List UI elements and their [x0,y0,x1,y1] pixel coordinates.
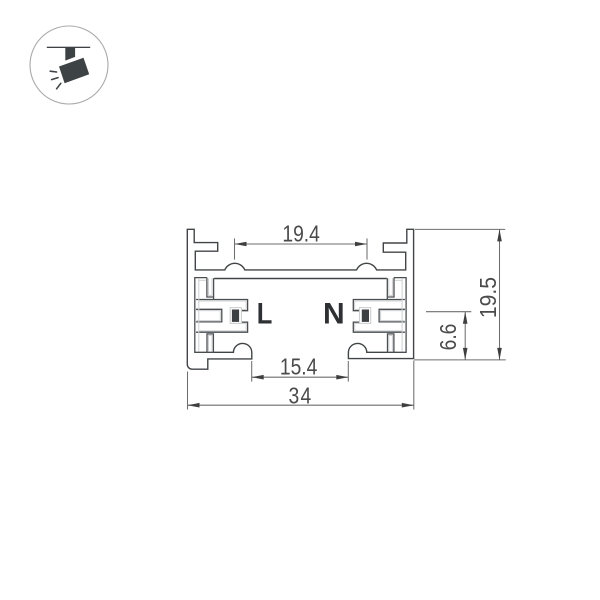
svg-text:34: 34 [288,383,312,409]
svg-text:L: L [257,296,273,329]
svg-text:19.4: 19.4 [282,221,320,247]
svg-text:15.4: 15.4 [280,354,318,380]
svg-text:19.5: 19.5 [475,277,501,318]
svg-text:6.6: 6.6 [435,324,461,351]
svg-text:N: N [323,297,345,330]
